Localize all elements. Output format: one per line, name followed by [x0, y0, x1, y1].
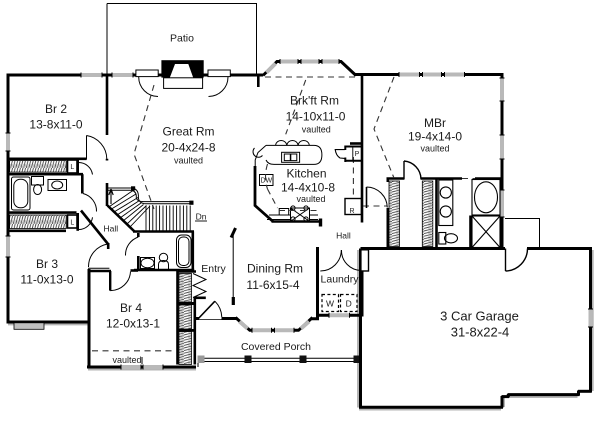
svg-text:31-8x22-4: 31-8x22-4 — [451, 325, 510, 340]
svg-text:R: R — [349, 208, 354, 215]
svg-text:vaulted: vaulted — [302, 125, 331, 135]
svg-text:19-4x14-0: 19-4x14-0 — [408, 130, 462, 144]
svg-text:3 Car Garage: 3 Car Garage — [440, 309, 519, 324]
svg-text:14-4x10-8: 14-4x10-8 — [281, 181, 335, 195]
svg-text:vaulted: vaulted — [420, 144, 449, 154]
svg-text:Entry: Entry — [201, 263, 226, 275]
svg-text:Laundry: Laundry — [321, 274, 360, 286]
svg-text:W: W — [326, 299, 334, 309]
svg-text:Dining Rm: Dining Rm — [247, 262, 303, 276]
svg-text:20-4x24-8: 20-4x24-8 — [161, 141, 215, 155]
svg-text:Br 3: Br 3 — [36, 257, 58, 271]
svg-text:Dn: Dn — [196, 212, 207, 222]
svg-text:vaulted: vaulted — [296, 194, 325, 204]
svg-text:D: D — [346, 299, 352, 309]
svg-text:Brk'ft Rm: Brk'ft Rm — [290, 94, 339, 108]
svg-text:Patio: Patio — [170, 33, 194, 45]
svg-text:Covered Porch: Covered Porch — [241, 341, 311, 353]
svg-text:Hall: Hall — [336, 231, 351, 241]
svg-text:11-0x13-0: 11-0x13-0 — [20, 273, 73, 287]
svg-text:MBr: MBr — [424, 116, 446, 130]
svg-text:14-10x11-0: 14-10x11-0 — [286, 110, 346, 124]
svg-text:L: L — [70, 220, 74, 227]
svg-text:Br 4: Br 4 — [120, 301, 142, 315]
svg-text:Kitchen: Kitchen — [286, 167, 326, 181]
svg-text:Great Rm: Great Rm — [162, 125, 214, 139]
svg-text:Hall: Hall — [103, 224, 118, 234]
svg-text:L: L — [70, 164, 74, 171]
svg-text:vaulted: vaulted — [174, 156, 203, 166]
svg-text:DW: DW — [260, 178, 272, 185]
svg-text:P: P — [355, 151, 360, 158]
svg-text:11-6x15-4: 11-6x15-4 — [246, 278, 299, 292]
svg-text:12-0x13-1: 12-0x13-1 — [106, 317, 160, 331]
svg-text:13-8x11-0: 13-8x11-0 — [29, 118, 82, 132]
svg-text:vaulted: vaulted — [112, 355, 141, 365]
svg-text:Br 2: Br 2 — [45, 102, 67, 116]
